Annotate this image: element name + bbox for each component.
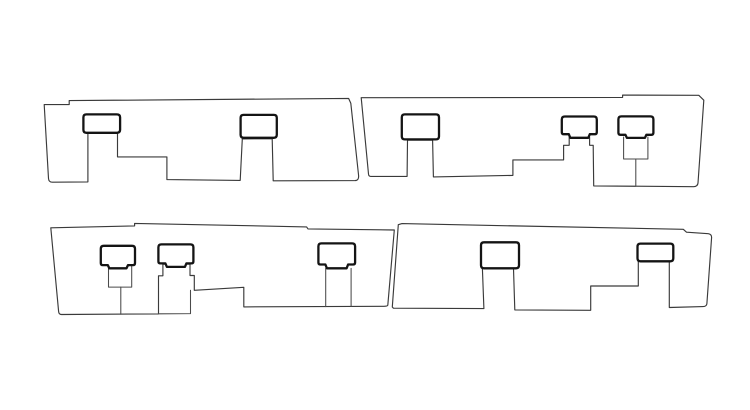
clip-cutout-icon <box>83 114 120 132</box>
clip-cutout-icon <box>638 244 674 262</box>
top-left-panel <box>44 98 358 182</box>
parts-outline-diagram <box>0 0 750 410</box>
clip-cutout-icon <box>562 117 597 138</box>
top-right-panel <box>361 95 704 187</box>
clip-cutout-icon <box>402 114 439 139</box>
clip-cutout-icon <box>158 244 193 267</box>
clip-cutout-icon <box>101 246 135 268</box>
clip-cutout-icon <box>318 243 355 268</box>
bottom-right-panel-outline <box>392 224 711 311</box>
bottom-right-panel <box>392 224 711 311</box>
clip-cutout-icon <box>241 115 277 138</box>
diagram-canvas <box>0 0 750 410</box>
slot-edge-cut <box>159 290 191 314</box>
bottom-left-panel <box>51 223 395 314</box>
top-left-panel-outline <box>44 98 358 182</box>
clip-cutout-icon <box>618 116 653 137</box>
clip-cutout-icon <box>481 242 519 268</box>
top-right-panel-outline <box>361 95 704 187</box>
